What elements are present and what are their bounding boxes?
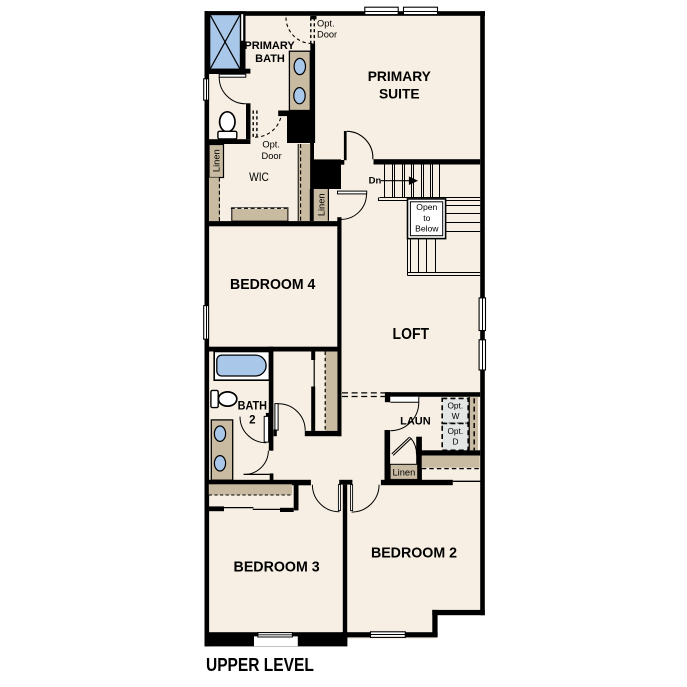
svg-text:Below: Below	[415, 224, 439, 234]
svg-text:Opt.: Opt.	[447, 426, 463, 436]
svg-text:BEDROOM 4: BEDROOM 4	[230, 276, 316, 293]
svg-text:Linen: Linen	[212, 149, 222, 172]
svg-text:W: W	[452, 411, 460, 421]
svg-text:BATH: BATH	[255, 53, 285, 65]
svg-text:to: to	[423, 213, 430, 223]
svg-text:Door: Door	[317, 30, 337, 40]
svg-text:Opt.: Opt.	[262, 140, 280, 150]
svg-text:UPPER LEVEL: UPPER LEVEL	[206, 654, 314, 675]
svg-text:2: 2	[249, 415, 255, 427]
svg-text:Door: Door	[262, 151, 282, 161]
svg-text:Opt.: Opt.	[447, 400, 463, 410]
svg-text:PRIMARY: PRIMARY	[368, 69, 431, 84]
svg-text:D: D	[453, 437, 459, 447]
svg-text:PRIMARY: PRIMARY	[244, 40, 295, 52]
svg-text:Open: Open	[416, 202, 437, 212]
svg-text:Dn: Dn	[369, 175, 382, 186]
svg-text:BEDROOM 3: BEDROOM 3	[234, 558, 320, 575]
svg-text:Opt.: Opt.	[317, 19, 335, 29]
svg-text:Linen: Linen	[393, 467, 416, 477]
svg-text:LOFT: LOFT	[393, 326, 430, 343]
svg-text:WIC: WIC	[249, 172, 269, 184]
svg-text:Linen: Linen	[317, 193, 327, 216]
svg-text:SUITE: SUITE	[379, 87, 420, 102]
svg-text:BATH: BATH	[238, 400, 267, 412]
svg-text:LAUN: LAUN	[400, 416, 431, 428]
svg-text:BEDROOM 2: BEDROOM 2	[371, 544, 457, 561]
